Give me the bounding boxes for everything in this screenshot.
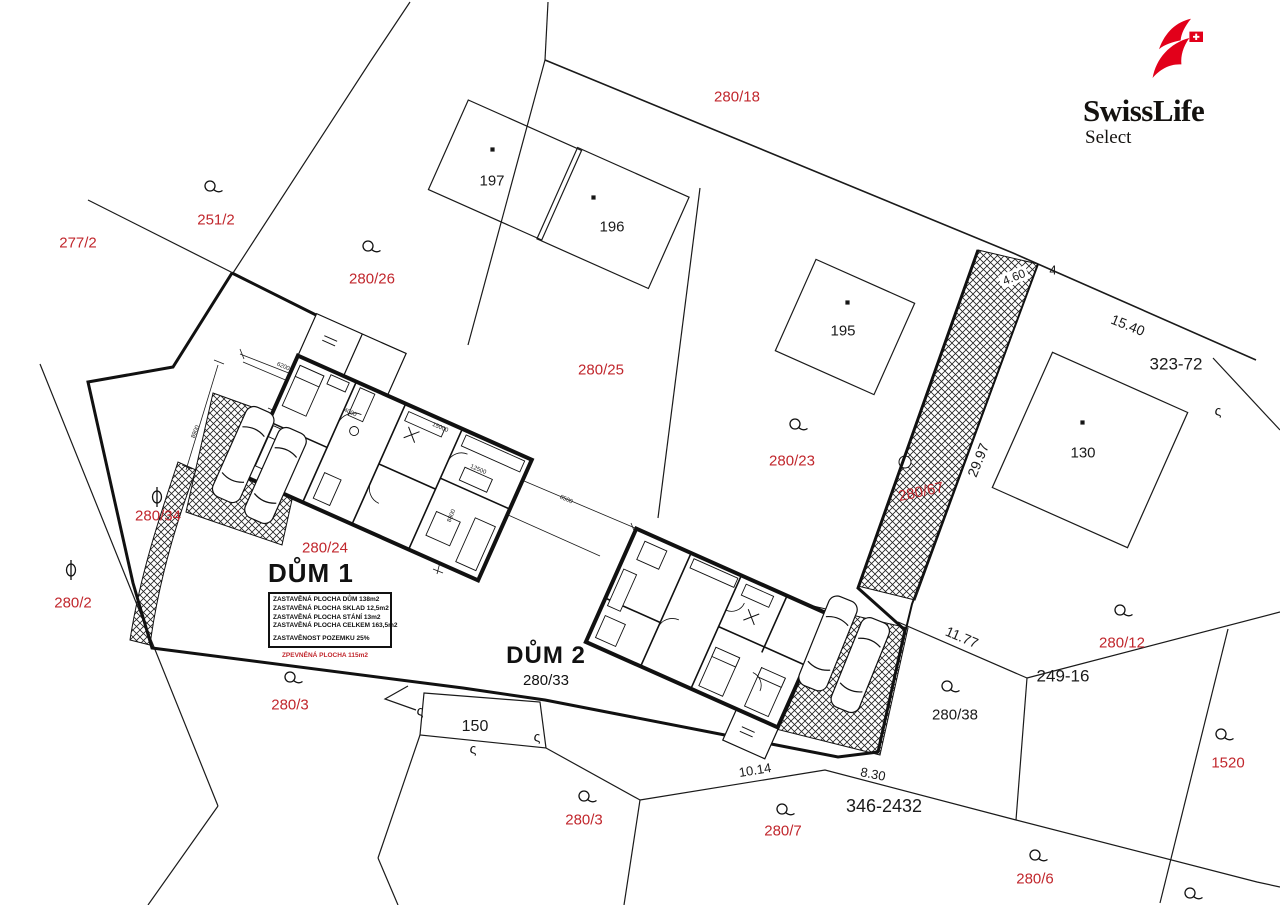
ref-label: 249-16 (1037, 668, 1090, 685)
logo-sub-text: Select (1085, 127, 1258, 149)
parcel-label: 251/2 (197, 213, 235, 228)
orchard-symbol-icon (363, 241, 381, 252)
parcel-label: 280/34 (135, 509, 181, 524)
boundary-mark-icon: ς (1215, 403, 1222, 419)
parcel-label: 280/26 (349, 272, 395, 287)
logo-brand-text: SwissLife (1083, 93, 1258, 129)
orchard-symbol-icon (579, 791, 597, 802)
orchard-symbol-icon (205, 181, 223, 192)
ref-label: 323-72 (1150, 356, 1203, 373)
orchard-symbol-icon (777, 804, 795, 815)
table-row: ZASTAVĚNÁ PLOCHA CELKEM 163,5m2 (273, 622, 387, 631)
ref-label: 196 (599, 220, 624, 235)
parcel-label: 280/23 (769, 454, 815, 469)
ref-label: 4 (1049, 264, 1056, 277)
parcel-label: 280/6 (1016, 872, 1054, 887)
parcel-label: 280/24 (302, 541, 348, 556)
ref-label: 150 (462, 719, 489, 735)
orchard-symbol-icon (285, 672, 303, 683)
meadow-symbol-icon (67, 560, 76, 580)
table-row: ZASTAVĚNÁ PLOCHA STÁNÍ 13m2 (273, 614, 387, 623)
parcel-label: 280/25 (578, 363, 624, 378)
site-plan-page: ςςςς 280/18277/2251/2280/26280/25280/232… (0, 0, 1280, 905)
ref-label: 197 (479, 174, 504, 189)
ref-label: 130 (1070, 446, 1095, 461)
orchard-symbol-icon (790, 419, 808, 430)
orchard-symbol-icon (1185, 888, 1203, 899)
parcel-label: 280/3 (271, 698, 309, 713)
parcel-label: 280/12 (1099, 636, 1145, 651)
ref-label: 280/38 (932, 708, 978, 723)
table-row: ZASTAVĚNOST POZEMKU 25% (273, 635, 387, 644)
swisslife-flag-icon (1135, 14, 1215, 86)
parcel-label: 1520 (1211, 756, 1244, 771)
house1-paved-area-note: ZPEVNĚNÁ PLOCHA 115m2 (268, 652, 382, 659)
orchard-symbol-icon (1115, 605, 1133, 616)
boundary-mark-glyph: ς (417, 703, 424, 719)
boundary-mark-icon: ς (534, 729, 541, 745)
ref-label: 346-2432 (846, 797, 922, 815)
house1-area-table: ZASTAVĚNÁ PLOCHA DŮM 138m2 ZASTAVĚNÁ PLO… (268, 592, 392, 648)
orchard-symbol-icon (1030, 850, 1048, 861)
meadow-symbol-icon (153, 487, 162, 507)
house1-title: DŮM 1 (268, 558, 398, 589)
parcel-label: 280/18 (714, 90, 760, 105)
parcel-label: 277/2 (59, 236, 97, 251)
house1-info-block: DŮM 1 ZASTAVĚNÁ PLOCHA DŮM 138m2 ZASTAVĚ… (268, 558, 398, 659)
orchard-symbol-icon (1216, 729, 1234, 740)
house1-floorplan (207, 314, 550, 581)
house2-title: DŮM 2 (506, 642, 586, 670)
ref-label: 195 (830, 324, 855, 339)
boundary-mark-glyph: ς (534, 729, 541, 745)
boundary-mark-glyph: ς (470, 741, 477, 757)
table-row: ZASTAVĚNÁ PLOCHA SKLAD 12,5m2 (273, 605, 387, 614)
boundary-mark-icon: ς (417, 703, 424, 719)
boundary-mark-glyph: ς (1215, 403, 1222, 419)
orchard-symbol-icon (942, 681, 960, 692)
table-row: ZASTAVĚNÁ PLOCHA DŮM 138m2 (273, 596, 387, 605)
house2-parcel-number: 280/33 (506, 672, 586, 689)
boundary-mark-icon: ς (470, 741, 477, 757)
existing-buildings (428, 100, 1187, 548)
parcel-label: 280/3 (565, 813, 603, 828)
swisslife-select-logo: SwissLife Select (1083, 14, 1258, 149)
parcel-label: 280/2 (54, 596, 92, 611)
parcel-label: 280/7 (764, 824, 802, 839)
house2-info-block: DŮM 2 280/33 (506, 642, 586, 689)
